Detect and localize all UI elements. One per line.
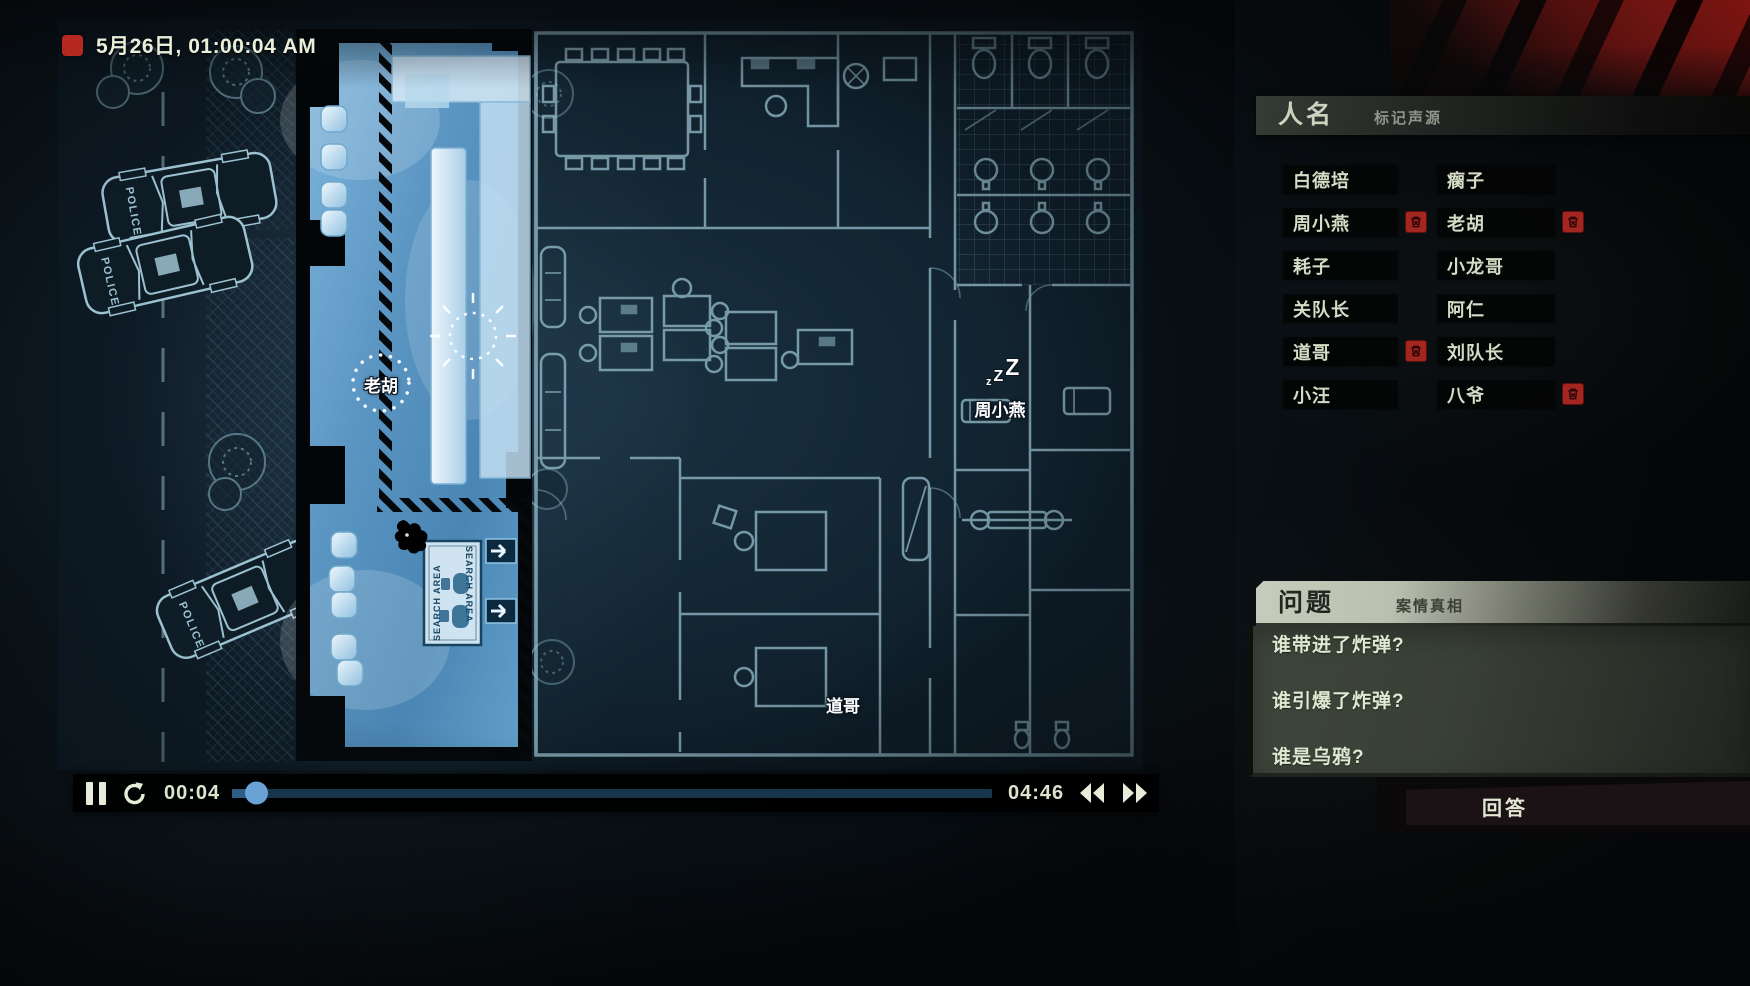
question-item: 谁是乌鸦?	[1272, 742, 1612, 766]
trash-icon	[1566, 215, 1580, 229]
delete-name-button[interactable]	[1405, 211, 1427, 233]
fast-forward-button[interactable]	[1120, 782, 1150, 804]
rewind-button[interactable]	[1077, 782, 1107, 804]
hazard-tape	[377, 498, 532, 512]
name-slot[interactable]: 八爷	[1438, 381, 1554, 408]
name-label: 周小燕	[1293, 210, 1350, 236]
name-label: 刘队长	[1447, 339, 1504, 365]
question-item: 谁带进了炸弹?	[1272, 630, 1612, 654]
name-label: 小汪	[1293, 382, 1331, 408]
delete-name-button[interactable]	[1562, 211, 1584, 233]
delete-name-button[interactable]	[1405, 340, 1427, 362]
search-area: SEARCH AREA SEARCH AREA	[424, 541, 481, 645]
rewind-icon	[1077, 782, 1107, 804]
name-label: 老胡	[1447, 210, 1485, 236]
progress-track[interactable]	[232, 789, 992, 798]
names-list: 白德培 瘸子 周小燕 老胡	[1284, 166, 1554, 408]
name-slot[interactable]: 耗子	[1284, 252, 1397, 279]
reception-desk	[431, 148, 466, 484]
name-slot[interactable]: 阿仁	[1438, 295, 1554, 322]
name-slot[interactable]: 道哥	[1284, 338, 1397, 365]
recording-timestamp: 5月26日, 01:00:04 AM	[62, 30, 316, 60]
name-label: 瘸子	[1447, 167, 1485, 193]
recording-indicator-icon	[62, 35, 83, 56]
floorplan-map[interactable]: POLICE	[0, 0, 1750, 986]
restart-icon	[121, 780, 148, 807]
name-slot[interactable]: 小汪	[1284, 381, 1397, 408]
name-slot[interactable]: 小龙哥	[1438, 252, 1554, 279]
name-slot[interactable]: 刘队长	[1438, 338, 1554, 365]
pause-button[interactable]	[86, 782, 106, 805]
recording-datetime: 5月26日, 01:00:04 AM	[96, 30, 316, 60]
total-time: 04:46	[1008, 782, 1064, 805]
name-slot[interactable]: 白德培	[1284, 166, 1397, 193]
name-slot[interactable]: 瘸子	[1438, 166, 1554, 193]
name-label: 耗子	[1293, 253, 1331, 279]
restart-button[interactable]	[121, 780, 148, 807]
questions-panel-header: 问题 案情真相	[1256, 581, 1750, 626]
name-label: 道哥	[1293, 339, 1331, 365]
search-area-text: SEARCH AREA	[432, 564, 442, 641]
name-label: 小龙哥	[1447, 253, 1504, 279]
trash-icon	[1566, 387, 1580, 401]
names-panel-subtitle: 标记声源	[1374, 107, 1442, 128]
delete-name-button[interactable]	[1562, 383, 1584, 405]
names-panel-header: 人名 标记声源	[1256, 96, 1750, 135]
name-label: 八爷	[1447, 382, 1485, 408]
elapsed-time: 00:04	[164, 782, 220, 805]
questions-panel-subtitle: 案情真相	[1396, 595, 1464, 616]
trash-icon	[1409, 215, 1423, 229]
map-character-daoge[interactable]: 道哥	[813, 692, 873, 717]
counter	[480, 102, 530, 478]
station-building	[536, 33, 1132, 755]
questions-list: 谁带进了炸弹? 谁引爆了炸弹? 谁是乌鸦?	[1272, 630, 1612, 798]
map-character-laohu[interactable]: 老胡	[351, 372, 411, 397]
name-slot[interactable]: 关队长	[1284, 295, 1397, 322]
name-label: 白德培	[1293, 167, 1350, 193]
questions-panel-title: 问题	[1278, 581, 1334, 625]
name-slot[interactable]: 周小燕	[1284, 209, 1397, 236]
game-screen: POLICE	[0, 0, 1750, 986]
question-item: 谁引爆了炸弹?	[1272, 686, 1612, 710]
sleeping-zzz-icon: zZZ	[986, 358, 1056, 385]
names-panel-title: 人名	[1278, 96, 1334, 135]
name-label: 关队长	[1293, 296, 1350, 322]
trash-icon	[1409, 344, 1423, 358]
map-character-zhouxiaoyan[interactable]: 周小燕	[950, 396, 1050, 421]
hazard-tape	[519, 512, 532, 754]
name-slot[interactable]: 老胡	[1438, 209, 1554, 236]
hazard-tape	[379, 42, 392, 504]
table	[405, 74, 449, 108]
fast-forward-icon	[1120, 782, 1150, 804]
name-label: 阿仁	[1447, 296, 1485, 322]
progress-knob[interactable]	[245, 782, 268, 805]
playback-bar: 00:04 04:46	[73, 774, 1159, 812]
